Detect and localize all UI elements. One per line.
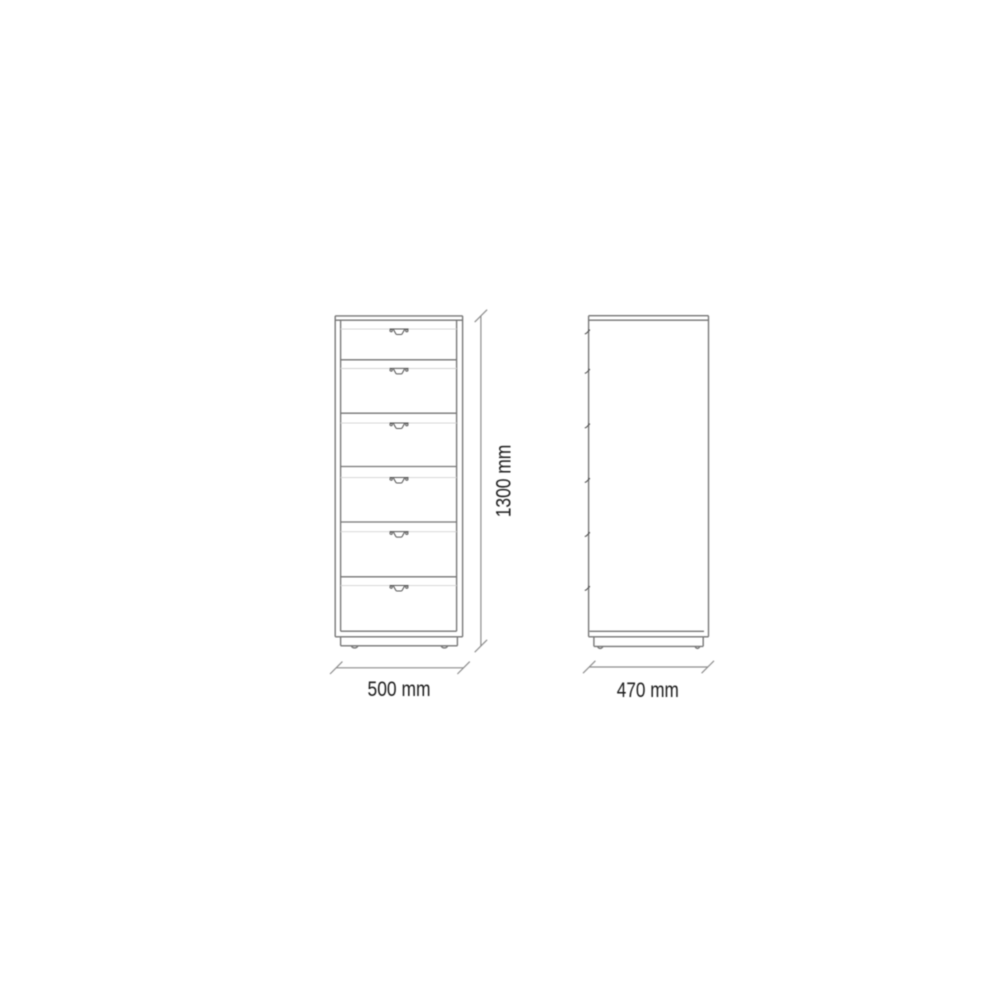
svg-text:500 mm: 500 mm bbox=[368, 678, 431, 701]
svg-text:470 mm: 470 mm bbox=[617, 679, 679, 702]
svg-text:1300 mm: 1300 mm bbox=[493, 445, 516, 518]
